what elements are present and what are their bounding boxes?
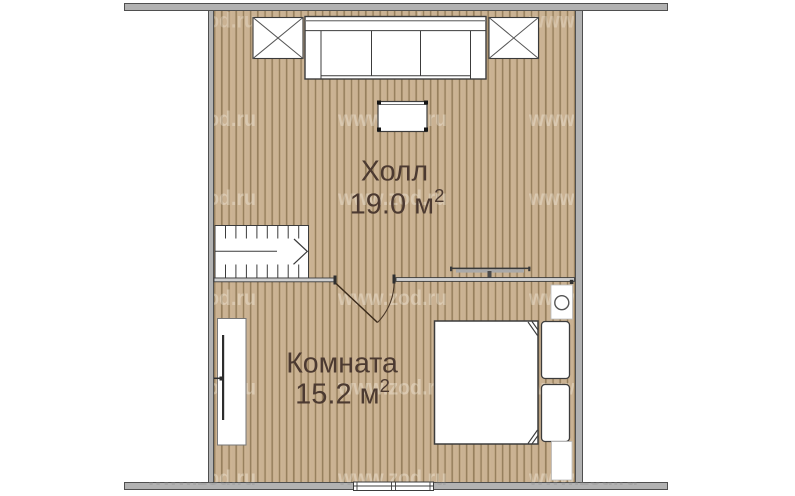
svg-text:www.zod.ru: www.zod.ru <box>528 186 638 210</box>
svg-text:www.zod.ru: www.zod.ru <box>146 186 256 210</box>
svg-text:www.zod.ru: www.zod.ru <box>146 286 256 310</box>
svg-text:www.zod.ru: www.zod.ru <box>528 9 638 33</box>
svg-text:19.0 м2: 19.0 м2 <box>350 185 445 221</box>
svg-text:www.zod.ru: www.zod.ru <box>528 107 638 131</box>
svg-text:www.zod.ru: www.zod.ru <box>146 107 256 131</box>
svg-text:15.2 м2: 15.2 м2 <box>295 375 390 411</box>
svg-text:Холл: Холл <box>361 156 428 188</box>
svg-text:www.zod.ru: www.zod.ru <box>146 9 256 33</box>
svg-text:www.zod.ru: www.zod.ru <box>528 286 638 310</box>
